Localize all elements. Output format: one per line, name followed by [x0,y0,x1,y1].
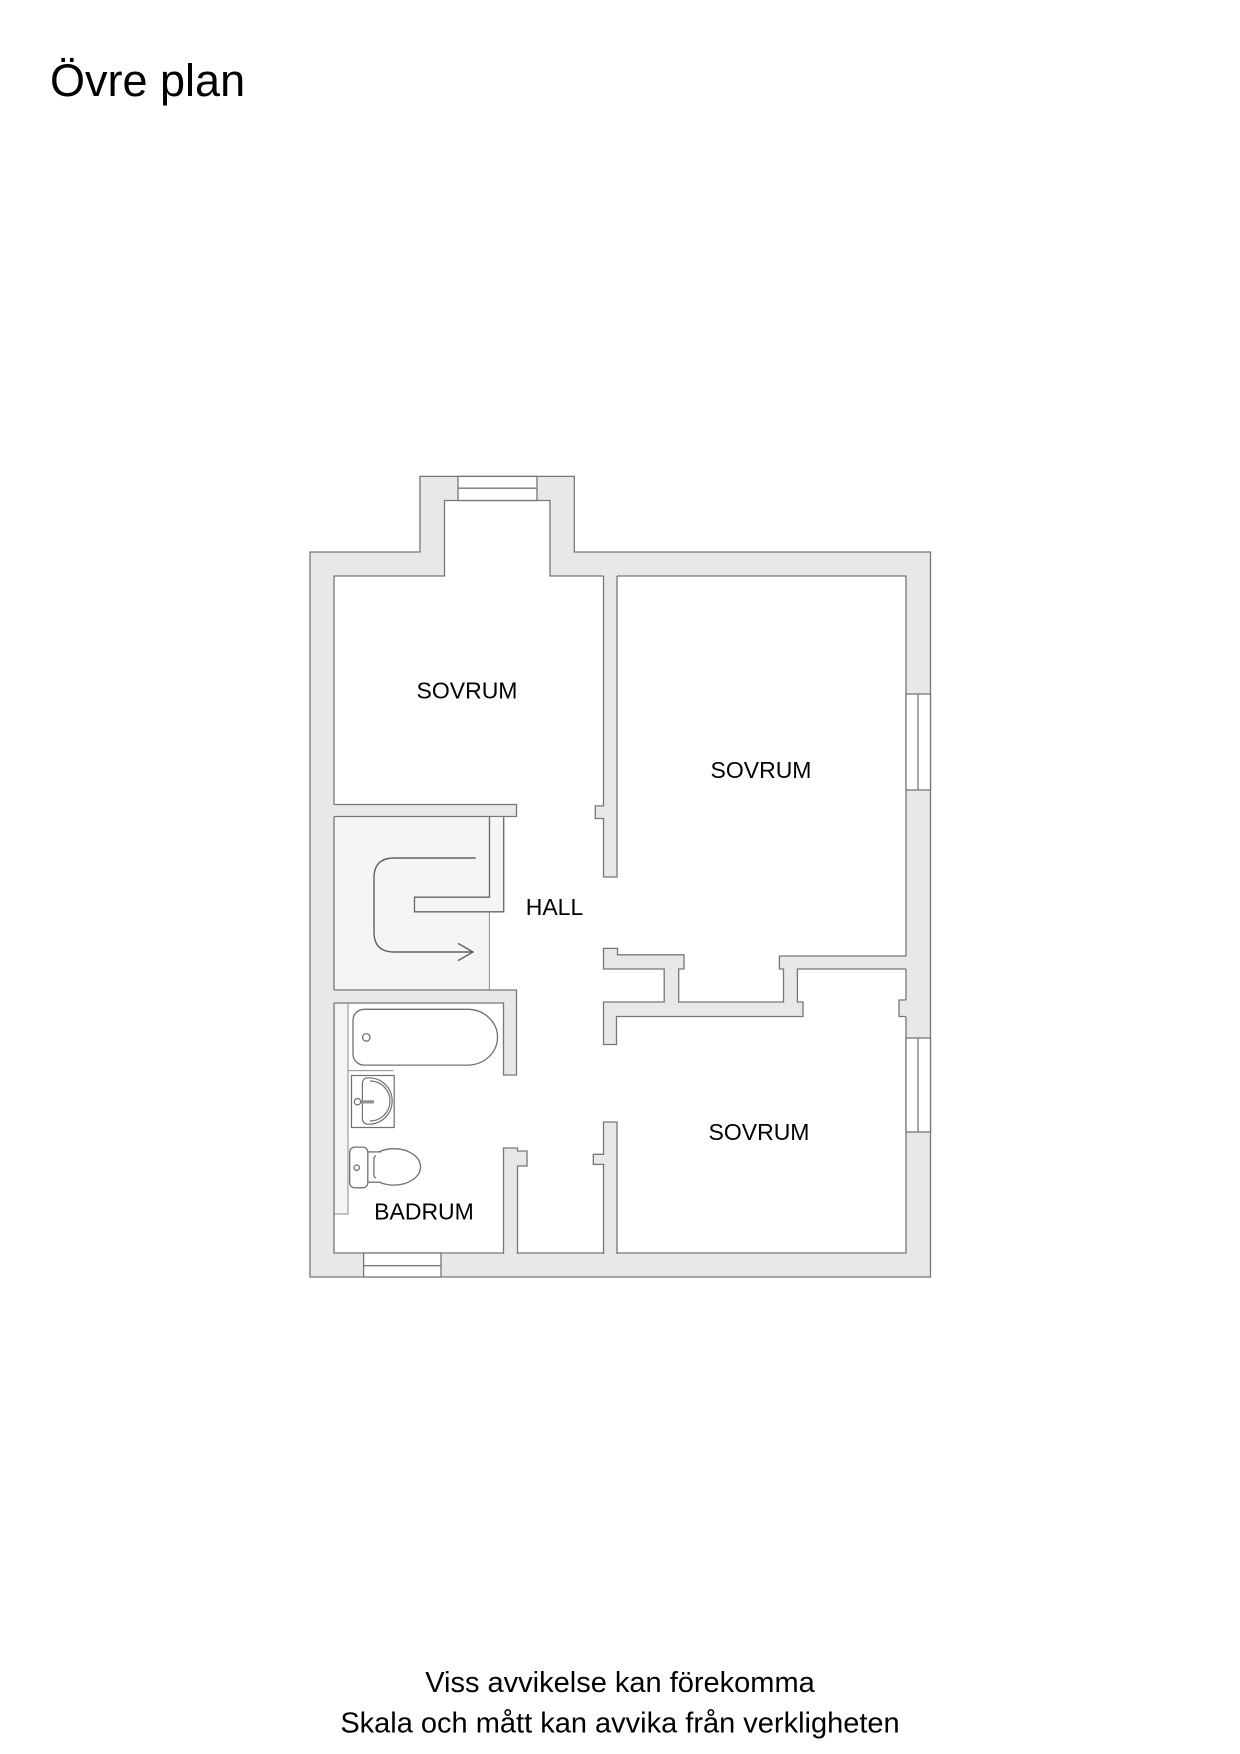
svg-text:SOVRUM: SOVRUM [417,678,518,704]
svg-text:Viss avvikelse kan förekomma: Viss avvikelse kan förekomma [425,1667,815,1699]
svg-text:HALL: HALL [526,894,584,920]
svg-text:Skala och mått kan avvika från: Skala och mått kan avvika från verklighe… [340,1708,899,1740]
svg-text:SOVRUM: SOVRUM [711,757,812,783]
svg-text:SOVRUM: SOVRUM [709,1119,810,1145]
svg-text:BADRUM: BADRUM [374,1198,474,1224]
svg-text:Övre plan: Övre plan [50,55,245,106]
